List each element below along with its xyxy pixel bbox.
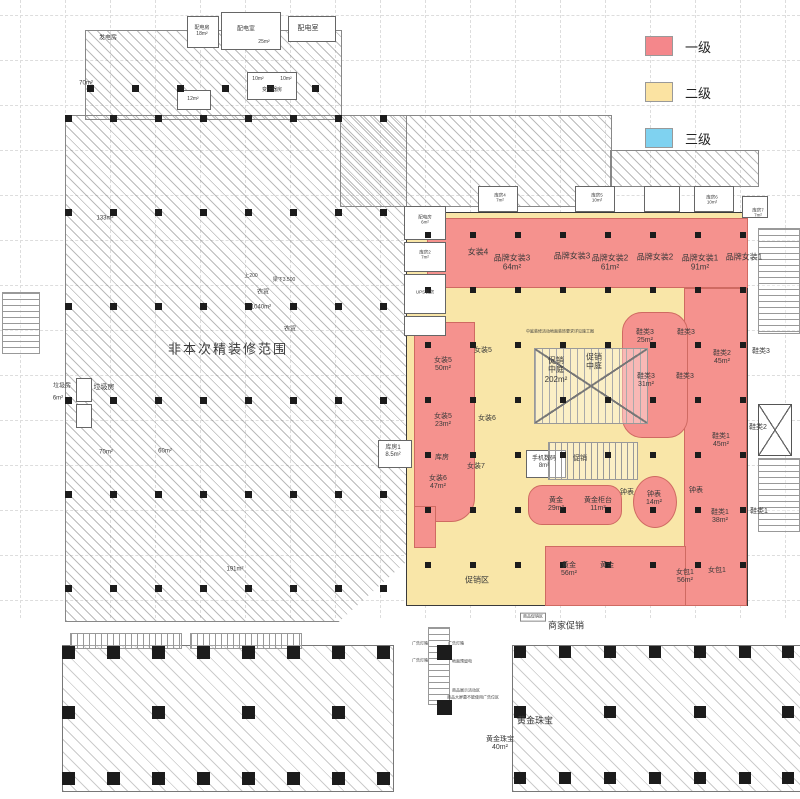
column [695, 397, 701, 403]
column [515, 232, 521, 238]
column [560, 452, 566, 458]
room-label: 黄金56m² [561, 562, 577, 579]
column [335, 209, 342, 216]
column [605, 232, 611, 238]
room-label: 鞋类3 [676, 373, 694, 381]
column [242, 706, 255, 719]
column [110, 585, 117, 592]
column [695, 507, 701, 513]
room-label: 12m² [187, 97, 198, 103]
column [695, 287, 701, 293]
legend-item: 三级 [645, 128, 711, 148]
room-label: 商家促销 [548, 621, 584, 632]
column [380, 397, 387, 404]
column [312, 85, 319, 92]
ad-lightbox-block [437, 645, 452, 660]
room-label: 钟表 [689, 487, 703, 495]
column [200, 397, 207, 404]
column [604, 646, 616, 658]
room-label: 促销中庭 [586, 353, 602, 372]
column [110, 303, 117, 310]
column [559, 772, 571, 784]
column [650, 507, 656, 513]
room-box [644, 186, 680, 212]
room-label: 中庭装修活动地面装饰要求详见施工图 [526, 330, 594, 335]
column [515, 452, 521, 458]
column [200, 209, 207, 216]
column [515, 507, 521, 513]
room-box [76, 378, 92, 402]
room-label: 库房 [435, 454, 449, 462]
column [197, 772, 210, 785]
column [287, 646, 300, 659]
room-label: 黄金柜台11m² [584, 497, 612, 514]
column [290, 397, 297, 404]
column [332, 646, 345, 659]
room-label: 70m² [79, 80, 93, 87]
room-label: 女包156m² [676, 569, 694, 586]
column [155, 209, 162, 216]
column [107, 772, 120, 785]
room-label: 鞋类3 [752, 348, 770, 356]
column [177, 85, 184, 92]
room-label: 配电室 [237, 26, 255, 33]
column [740, 562, 746, 568]
column [695, 342, 701, 348]
column [335, 303, 342, 310]
column [470, 287, 476, 293]
column [515, 287, 521, 293]
column [245, 397, 252, 404]
column [290, 303, 297, 310]
room-label: 配电房18m² [194, 26, 209, 38]
column [132, 85, 139, 92]
legend-label: 一级 [685, 37, 711, 56]
column [152, 646, 165, 659]
legend-label: 二级 [685, 83, 711, 102]
floor-plan-canvas: 一级二级三级 发电房70m²配电房18m²配电室25m²配电室10m²10m²变… [0, 0, 800, 799]
column [287, 772, 300, 785]
stairs-bottom-left-a [70, 633, 182, 649]
column [65, 491, 72, 498]
column [560, 397, 566, 403]
room-label: 女装550m² [434, 357, 452, 374]
room-label: 25m² [258, 40, 269, 46]
column [290, 115, 297, 122]
room-label: 商品促销区 [520, 613, 546, 622]
room-label: 鞋类3 [677, 329, 695, 337]
column [377, 772, 390, 785]
room-label: 梁下3.500 [273, 278, 296, 284]
column [650, 232, 656, 238]
column [332, 706, 345, 719]
legend-item: 二级 [645, 82, 711, 102]
legend-swatch-icon [645, 128, 673, 148]
room-label: 191m² [226, 566, 243, 573]
column [380, 491, 387, 498]
room-label: 鞋类245m² [713, 350, 731, 367]
room-label: 垃圾房 [53, 383, 71, 390]
legend-item: 一级 [645, 36, 711, 56]
column [740, 342, 746, 348]
column [782, 772, 794, 784]
column [559, 646, 571, 658]
column [782, 646, 794, 658]
column [425, 452, 431, 458]
column [694, 772, 706, 784]
room-label: 6m² [53, 395, 63, 402]
hatched-building-bottom-left [62, 645, 394, 792]
room-label: 60m² [158, 448, 172, 455]
column [425, 342, 431, 348]
column [604, 772, 616, 784]
room-label: 发电房 [99, 35, 117, 42]
column [65, 585, 72, 592]
column [470, 232, 476, 238]
column [200, 303, 207, 310]
column [110, 115, 117, 122]
column [740, 397, 746, 403]
column [335, 397, 342, 404]
grid-axis-line [0, 15, 800, 16]
column [425, 562, 431, 568]
column [649, 772, 661, 784]
room-label: 促销中庭202m² [545, 356, 568, 384]
column [604, 706, 616, 718]
legend-swatch-icon [645, 36, 673, 56]
column [155, 303, 162, 310]
column [514, 646, 526, 658]
column [470, 562, 476, 568]
room-label: 鞋类138m² [711, 509, 729, 526]
room-label: 品牌女装3 [554, 251, 590, 260]
room-label: 商品大屏幕不能使用广告位区 [447, 696, 499, 701]
room-label: 10m² [252, 77, 263, 83]
room-label: 库房510m² [591, 193, 603, 204]
column [155, 115, 162, 122]
room-label: 10m² [280, 77, 291, 83]
room-label: 黄金29m² [548, 497, 564, 514]
column [649, 646, 661, 658]
column [242, 646, 255, 659]
room-label: 库房47m² [494, 193, 506, 204]
column [62, 706, 75, 719]
column [470, 397, 476, 403]
column [245, 585, 252, 592]
column [152, 706, 165, 719]
room-label: 广告灯箱 [448, 642, 464, 647]
room-label: 库房27m² [419, 250, 431, 261]
column [110, 491, 117, 498]
hatched-building-bottom-right [512, 645, 800, 792]
column [65, 115, 72, 122]
room-label: 女装5 [474, 347, 492, 355]
column [560, 342, 566, 348]
column [740, 287, 746, 293]
room-label: 黄金珠宝 [517, 716, 553, 727]
column [605, 287, 611, 293]
room-label: 库房77m² [752, 208, 764, 219]
column [515, 397, 521, 403]
column [782, 706, 794, 718]
column [155, 585, 162, 592]
column [245, 115, 252, 122]
room-label: 农贸 [284, 326, 296, 333]
column [739, 646, 751, 658]
column [200, 585, 207, 592]
room-label: 地面预留电 [452, 660, 472, 665]
room-label: 女装7 [467, 463, 485, 471]
room-label: 农贸 [257, 289, 269, 296]
column [245, 209, 252, 216]
column [380, 585, 387, 592]
ad-lightbox-block [437, 700, 452, 715]
room-label: 品牌女装1 [726, 252, 762, 261]
column [62, 772, 75, 785]
room-label: 非本次精装修范围 [168, 341, 288, 356]
room-label: 配电室 [298, 25, 319, 33]
room-label: 配电房6m² [418, 215, 432, 226]
column [425, 507, 431, 513]
room-box [404, 316, 446, 336]
room-label: UPS机房 [416, 289, 434, 294]
stairs-right-lower [758, 458, 800, 532]
column [245, 491, 252, 498]
room-label: 广告灯箱 [412, 659, 428, 664]
room-label: 垃圾房 [94, 384, 115, 392]
room-label: 女装6 [478, 415, 496, 423]
room-label: 女装523m² [434, 413, 452, 430]
column [425, 397, 431, 403]
column [332, 772, 345, 785]
stairs-promo [548, 442, 638, 480]
column [335, 115, 342, 122]
column [694, 646, 706, 658]
column [605, 397, 611, 403]
column [65, 303, 72, 310]
column [470, 452, 476, 458]
column [605, 342, 611, 348]
column [197, 646, 210, 659]
room-label: 品牌女装191m² [682, 254, 718, 273]
room-label: 鞋类325m² [636, 329, 654, 346]
column [740, 507, 746, 513]
legend-swatch-icon [645, 82, 673, 102]
column [695, 562, 701, 568]
legend-label: 三级 [685, 129, 711, 148]
column [515, 342, 521, 348]
hatched-strip-top-middle [340, 115, 612, 207]
room-label: 女包1 [708, 567, 726, 575]
column [380, 115, 387, 122]
column [290, 209, 297, 216]
column [425, 232, 431, 238]
room-label: 鞋类1 [750, 508, 768, 516]
room-label: 钟表14m² [646, 491, 662, 508]
room-label: 鞋类2 [749, 424, 767, 432]
column [152, 772, 165, 785]
room-label: 库房610m² [706, 195, 718, 206]
room-label: 品牌女装2 [637, 252, 673, 261]
room-label: 促销 [573, 455, 587, 463]
column [107, 646, 120, 659]
stairs-right-upper [758, 228, 800, 334]
room-label: 女装647m² [429, 475, 447, 492]
column [335, 491, 342, 498]
column [695, 452, 701, 458]
room-label: 黄金 [600, 562, 614, 570]
room-label: 上200 [244, 274, 257, 280]
room-label: 变压器房 [262, 88, 282, 94]
stairs-left-exterior [2, 292, 40, 354]
column [62, 646, 75, 659]
column [65, 397, 72, 404]
column [560, 287, 566, 293]
column [740, 452, 746, 458]
room-label: 促销区 [465, 575, 489, 584]
room-box [76, 404, 92, 428]
column [694, 706, 706, 718]
column [514, 772, 526, 784]
column [560, 232, 566, 238]
room-label: 鞋类145m² [712, 433, 730, 450]
column [65, 209, 72, 216]
room-label: 鞋类331m² [637, 373, 655, 390]
column [739, 772, 751, 784]
room-label: 广告灯箱 [412, 642, 428, 647]
room-label: 女装4 [468, 247, 488, 256]
room-label: 库房18.5m² [385, 445, 400, 459]
column [515, 562, 521, 568]
room-label: 品牌女装261m² [592, 254, 628, 273]
column [110, 209, 117, 216]
column [335, 585, 342, 592]
room-label: 手机数码8m² [532, 456, 556, 470]
column [110, 397, 117, 404]
column [380, 209, 387, 216]
column [650, 452, 656, 458]
escalator-bottom [428, 627, 450, 705]
column [470, 507, 476, 513]
column [650, 397, 656, 403]
column [377, 646, 390, 659]
room-label: 钟表 [620, 489, 634, 497]
column [695, 232, 701, 238]
legend: 一级二级三级 [645, 36, 711, 174]
column [200, 115, 207, 122]
column [380, 303, 387, 310]
column [242, 772, 255, 785]
column [650, 287, 656, 293]
column [290, 585, 297, 592]
column [200, 491, 207, 498]
column [155, 491, 162, 498]
column [605, 452, 611, 458]
column [290, 491, 297, 498]
room-label: 品牌女装364m² [494, 254, 530, 273]
column [222, 85, 229, 92]
room-label: 黄金珠宝40m² [486, 736, 514, 753]
room-label: 商品展示活动区 [452, 689, 480, 694]
column [155, 397, 162, 404]
room-label: 1040m² [251, 304, 271, 311]
room-label: 133m² [96, 215, 113, 222]
column [650, 562, 656, 568]
column [740, 232, 746, 238]
room-label: 70m² [99, 449, 113, 456]
